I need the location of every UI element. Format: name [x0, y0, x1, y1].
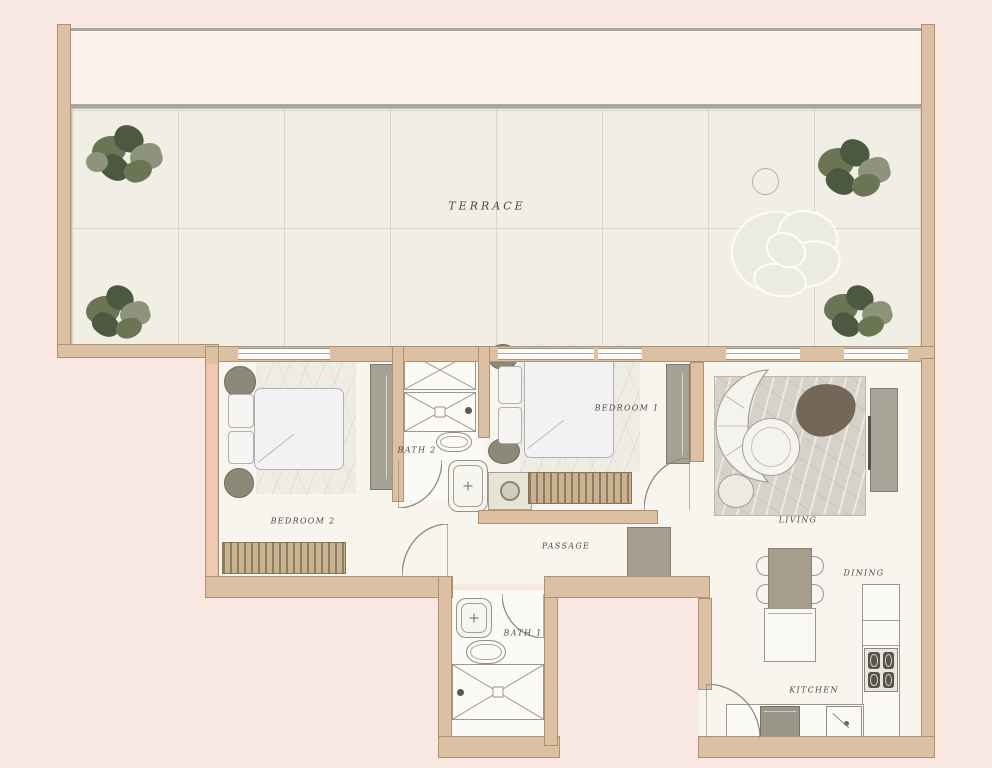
- terrace-circle-decor: [752, 168, 779, 195]
- apartment-bottom-wall: [698, 736, 935, 758]
- living-left-wall: [698, 598, 712, 690]
- coffee-table: [742, 418, 800, 476]
- room-label-bath1: BATH 1: [504, 629, 543, 638]
- bedroom2-bottom-wall: [205, 576, 453, 598]
- bedroom1-living-wall: [690, 362, 704, 462]
- stove-burners-icon: [864, 648, 898, 692]
- window-icon: [498, 348, 594, 360]
- apartment-right-wall: [921, 358, 935, 758]
- bathtub-icon: [456, 598, 492, 638]
- plant-icon: [86, 126, 166, 190]
- dining-table: [768, 548, 812, 612]
- room-label-passage: PASSAGE: [542, 542, 590, 551]
- tv-icon: [868, 416, 871, 470]
- fridge-icon: [760, 706, 800, 738]
- plant-icon: [810, 140, 894, 202]
- terrace-planter-band: [71, 28, 922, 108]
- bedroom2-bench: [222, 542, 346, 574]
- room-label-kitchen: KITCHEN: [789, 686, 839, 695]
- left-wall-accent: [207, 364, 217, 576]
- room-label-bedroom1: BEDROOM 1: [595, 404, 660, 413]
- counter-divider: [863, 620, 899, 621]
- bedroom2-door-arc: [402, 524, 448, 576]
- bathtub-icon: [448, 460, 488, 512]
- tv-console: [870, 388, 898, 492]
- room-label-dining: DINING: [844, 569, 885, 578]
- window-icon: [844, 348, 908, 360]
- passage-bottom-wall: [544, 576, 710, 598]
- bath1-right-wall: [544, 594, 558, 746]
- counter-divider: [863, 645, 899, 646]
- terrace-right-wall: [921, 24, 935, 358]
- plant-icon: [80, 286, 154, 346]
- entrance-door-arc: [706, 684, 760, 738]
- bedroom2-wardrobe: [370, 364, 394, 490]
- window-icon: [598, 348, 642, 360]
- bedroom1-bench: [528, 472, 632, 504]
- terrace-sculpture-lounger: [724, 196, 852, 302]
- bedroom2-headboard-pillows: [228, 394, 254, 464]
- room-label-bedroom2: BEDROOM 2: [271, 517, 336, 526]
- sink-icon: [826, 706, 862, 738]
- terrace-bottom-wall: [57, 344, 219, 358]
- bedroom1-door-arc: [644, 458, 690, 510]
- bath1-left-wall: [438, 576, 452, 758]
- vanity-basin: [488, 472, 532, 510]
- room-label-bath2: BATH 2: [398, 446, 437, 455]
- window-icon: [238, 348, 330, 360]
- bath2-bedroom1-wall: [478, 346, 490, 438]
- window-icon: [726, 348, 800, 360]
- passage-cabinet: [627, 527, 671, 579]
- shower-icon: [452, 664, 544, 720]
- bedroom2-side-table: [224, 468, 254, 498]
- shower-icon: [404, 392, 476, 432]
- toilet-icon: [466, 640, 506, 664]
- terrace-left-wall: [57, 24, 71, 358]
- bedroom1-headboard-pillows: [498, 366, 522, 444]
- bath1-bottom-wall: [438, 736, 560, 758]
- kitchen-island: [764, 608, 816, 662]
- room-label-living: LIVING: [779, 516, 818, 525]
- bedroom2-bed: [254, 388, 344, 470]
- toilet-icon: [436, 432, 472, 452]
- bath2-door-arc: [398, 460, 442, 508]
- floor-plan-canvas: TERRACE BEDROOM 1 BEDROOM 2 BATH 2 BATH …: [0, 0, 992, 768]
- bedroom1-wardrobe: [666, 364, 690, 464]
- room-label-terrace: TERRACE: [448, 200, 525, 213]
- bedroom1-bottom-wall: [478, 510, 658, 524]
- pouf: [718, 474, 754, 508]
